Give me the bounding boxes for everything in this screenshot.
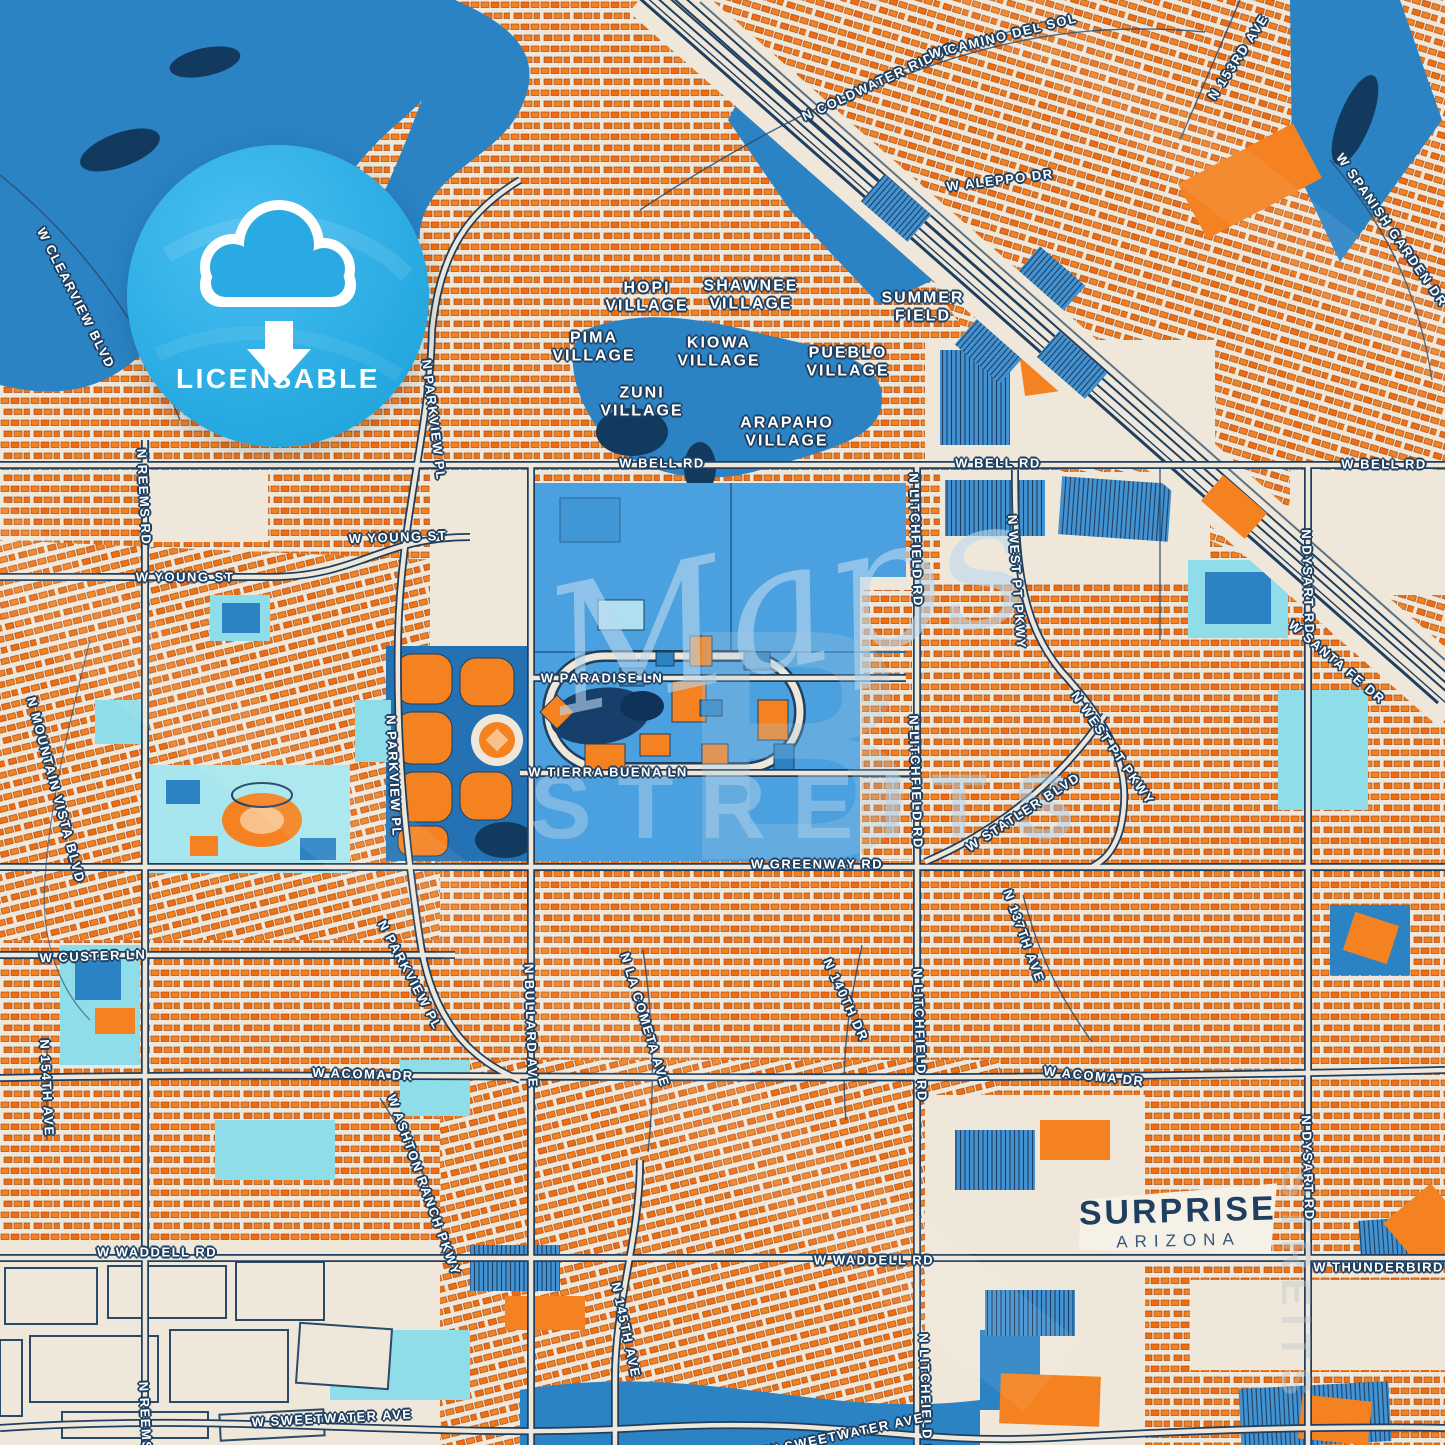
village-label: ARAPAHO VILLAGE: [740, 414, 834, 449]
street-label: N DYSART RD: [1299, 529, 1318, 635]
badge-label: LICENSABLE: [127, 363, 429, 395]
street-label: N LA COMETA AVE: [617, 951, 672, 1089]
street-label: W SWEETWATER AVE: [765, 1410, 926, 1445]
street-label: N WEST PT PKWY: [1005, 514, 1029, 649]
street-label: W SANTA FE DR: [1286, 617, 1389, 706]
street-label: N LITCHFIELD RD: [910, 968, 930, 1102]
street-label: N BULLARD AVE: [521, 964, 540, 1089]
street-label: N MOUNTAIN VISTA BLVD: [24, 695, 88, 884]
street-label: W BELL RD: [955, 456, 1040, 471]
street-label: W CUSTER LN: [39, 947, 146, 966]
street-label: N 153RD AVE: [1205, 11, 1271, 102]
street-label: W ALEPPO DR: [946, 166, 1055, 194]
street-label: N LITCHFIELD RD: [906, 715, 926, 849]
street-label: N DYSART RD: [1299, 1115, 1318, 1221]
street-label: W CLEARVIEW BLVD: [34, 225, 118, 371]
street-label: W YOUNG ST: [136, 570, 235, 585]
street-label: W BELL RD: [619, 456, 704, 471]
street-label: N 154TH AVE: [37, 1039, 57, 1137]
street-label: W ACOMA DR: [312, 1065, 414, 1084]
street-label: N REEMS RD: [134, 448, 154, 545]
street-label: N 140TH DR: [820, 956, 871, 1043]
street-label: W CAMINO DEL SOL: [927, 10, 1078, 61]
street-label: W WADDELL RD: [814, 1253, 934, 1268]
street-label: W WADDELL RD: [97, 1245, 217, 1260]
street-label: N LITCHFIELD RD: [916, 1333, 936, 1445]
street-label: N PARKVIEW PL: [383, 715, 404, 837]
state-name: ARIZONA: [1116, 1230, 1241, 1250]
village-label: KIOWA VILLAGE: [677, 334, 760, 369]
street-label: W ACOMA DR: [1043, 1063, 1145, 1089]
street-label: N LITCHFIELD RD: [906, 473, 926, 607]
street-label: N PARKVIEW PL: [375, 918, 445, 1033]
street-label: W TIERRA BUENA LN: [528, 765, 688, 780]
village-label: PUEBLO VILLAGE: [806, 344, 889, 379]
street-label: W THUNDERBIRD RD: [1313, 1260, 1445, 1275]
street-label: W STATLER BLVD: [963, 770, 1083, 855]
street-label: W SPANISH GARDEN DR: [1333, 151, 1445, 310]
street-label: N WEST PT PKWY: [1068, 689, 1157, 808]
street-label: W GREENWAY RD: [751, 857, 883, 872]
street-label: W YOUNG ST: [348, 528, 447, 546]
cloud-download-icon: [127, 145, 429, 447]
street-label: W BELL RD: [1341, 457, 1426, 472]
village-label: SHAWNEE VILLAGE: [704, 277, 799, 312]
street-label: W ASHTON RANCH PKWY: [384, 1092, 464, 1277]
street-label: N 145TH AVE: [609, 1281, 644, 1379]
village-label: HOPI VILLAGE: [605, 279, 688, 314]
village-label: SUMMER FIELD: [881, 289, 964, 324]
map-poster: Maps B STREITS STREITS N COLDWATER RIDGE…: [0, 0, 1445, 1445]
licensable-badge[interactable]: LICENSABLE: [127, 145, 429, 447]
village-label: PIMA VILLAGE: [552, 329, 635, 364]
street-label: N COLDWATER RIDGE: [800, 40, 957, 124]
village-label: ZUNI VILLAGE: [600, 384, 683, 419]
street-label: W PARADISE LN: [541, 671, 664, 686]
street-label: N 137TH AVE: [1000, 888, 1047, 985]
street-label: N REEMS RD: [136, 1381, 156, 1445]
cloud-shape: [200, 200, 356, 307]
street-label: W SWEETWATER AVE: [251, 1406, 413, 1429]
